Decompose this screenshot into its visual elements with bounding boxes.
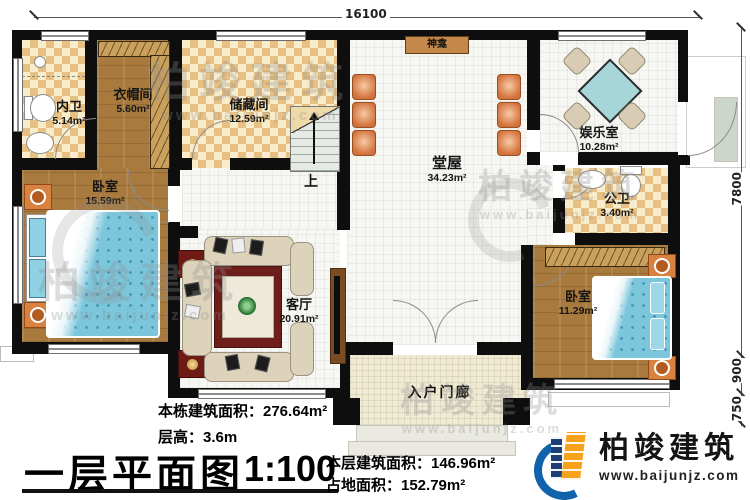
window-top-inner-bath bbox=[41, 31, 89, 41]
room-name: 公卫 bbox=[586, 192, 648, 207]
floor-corridor bbox=[182, 168, 347, 230]
stairs-up-label: 上 bbox=[304, 171, 318, 191]
hall-chair bbox=[352, 130, 376, 156]
brand-logo-text: 柏竣建筑 www.baijunjz.com bbox=[599, 434, 740, 483]
dimension-right-upper-value: 7800 bbox=[727, 172, 747, 205]
wall-living-top-stub bbox=[168, 226, 198, 238]
wall-bedroom-right-left bbox=[521, 245, 533, 390]
wall-entertainment-bottom-b bbox=[578, 152, 678, 165]
pillow bbox=[650, 282, 665, 314]
shower-partition bbox=[22, 76, 85, 77]
room-name: 储藏间 bbox=[210, 98, 288, 113]
sofa-pillow bbox=[184, 282, 201, 297]
sofa-pillow bbox=[231, 237, 245, 253]
room-area: 10.28m² bbox=[560, 141, 638, 153]
hall-chair bbox=[497, 130, 521, 156]
wall-public-bath-left-a bbox=[553, 165, 565, 171]
dimension-right-lower-value: 750 bbox=[727, 396, 747, 421]
brand-website: www.baijunjz.com bbox=[599, 468, 740, 483]
porch-pillar-right bbox=[503, 398, 530, 425]
window-bottom-bedroom-right bbox=[554, 379, 670, 389]
room-label-storage: 储藏间 12.59m² bbox=[210, 98, 288, 125]
wall-right-mid bbox=[668, 155, 690, 165]
porch-pillar-left bbox=[333, 398, 360, 425]
dimension-tick bbox=[29, 10, 39, 20]
pillow bbox=[650, 318, 665, 350]
room-area: 20.91m² bbox=[266, 313, 332, 325]
sofa-chaise-top bbox=[290, 242, 314, 296]
sink bbox=[26, 132, 54, 154]
stat-land-area: 占地面积：152.79m² bbox=[326, 474, 465, 495]
sofa-pillow bbox=[249, 239, 264, 256]
window-top-entertainment bbox=[558, 31, 646, 41]
stairs-direction-arrow bbox=[309, 112, 319, 120]
window-left-inner-bath bbox=[13, 58, 23, 132]
room-label-bedroom-left: 卧室 15.59m² bbox=[60, 180, 150, 207]
room-area: 11.29m² bbox=[538, 305, 618, 317]
room-name: 客厅 bbox=[266, 298, 332, 313]
wall-cloakroom-right bbox=[168, 40, 182, 170]
room-label-entertainment: 娱乐室 10.28m² bbox=[560, 126, 638, 153]
room-name: 卧室 bbox=[60, 180, 150, 195]
brand-logo: 柏竣建筑 www.baijunjz.com bbox=[534, 428, 740, 488]
wall-hall-bottom-b bbox=[477, 342, 530, 355]
sofa-pillow bbox=[184, 304, 201, 319]
wall-public-bath-left-b bbox=[553, 198, 565, 233]
room-name: 娱乐室 bbox=[560, 126, 638, 141]
sofa-pillow bbox=[225, 354, 240, 371]
brand-logo-icon bbox=[534, 428, 590, 488]
wardrobe bbox=[545, 247, 665, 267]
stat-building-total-area: 本栋建筑面积：276.64m² bbox=[158, 400, 327, 421]
room-label-main-hall: 堂屋 34.23m² bbox=[402, 155, 492, 184]
exterior-pad-right bbox=[548, 392, 670, 407]
hall-chair bbox=[352, 74, 376, 100]
room-name: 内卫 bbox=[40, 100, 98, 115]
room-name: 衣帽间 bbox=[98, 88, 168, 103]
wall-hall-bottom-a bbox=[345, 342, 393, 355]
room-label-entry-porch: 入户门廊 bbox=[382, 382, 497, 402]
bed-left bbox=[46, 210, 160, 338]
room-area: 34.23m² bbox=[402, 172, 492, 184]
wall-public-bath-bottom bbox=[575, 233, 678, 245]
room-area: 3.40m² bbox=[586, 207, 648, 219]
floor-corridor-right bbox=[527, 165, 553, 245]
window-bottom-bedroom-left bbox=[48, 344, 140, 354]
wall-hall-right bbox=[527, 30, 540, 130]
sofa-bottom bbox=[204, 352, 294, 382]
tv bbox=[334, 276, 340, 354]
dimension-right-middle-value: 900 bbox=[727, 358, 747, 383]
stairs-direction-line bbox=[313, 120, 315, 164]
floor-plan-canvas: 柏竣建筑 www.baijunjz.com 柏竣建筑 www.baijunjz.… bbox=[0, 0, 750, 500]
brand-name: 柏竣建筑 bbox=[599, 434, 740, 464]
window-left-bedroom bbox=[13, 206, 23, 304]
hall-chair bbox=[497, 74, 521, 100]
window-bottom-living bbox=[198, 389, 326, 399]
room-name: 卧室 bbox=[538, 290, 618, 305]
room-label-living: 客厅 20.91m² bbox=[266, 298, 332, 325]
room-area: 5.14m² bbox=[40, 115, 98, 127]
hall-chair bbox=[497, 102, 521, 128]
plant bbox=[238, 297, 256, 315]
plan-scale: 1:100 bbox=[244, 448, 336, 490]
room-label-public-bath: 公卫 3.40m² bbox=[586, 192, 648, 219]
dimension-tick bbox=[693, 10, 703, 20]
nightstand bbox=[24, 184, 52, 210]
room-name: 堂屋 bbox=[402, 155, 492, 172]
room-area: 15.59m² bbox=[60, 195, 150, 207]
window-top-storage bbox=[216, 31, 306, 41]
stat-floor-area: 本层建筑面积：146.96m² bbox=[326, 452, 495, 473]
shower-head bbox=[34, 56, 46, 68]
bed-blanket bbox=[48, 212, 158, 336]
title-underline bbox=[22, 489, 338, 493]
room-label-bedroom-right: 卧室 11.29m² bbox=[538, 290, 618, 317]
room-area: 12.59m² bbox=[210, 113, 288, 125]
sofa-chaise-bottom bbox=[290, 322, 314, 376]
shrine-shelf: 神龛 bbox=[405, 36, 469, 54]
room-label-cloakroom: 衣帽间 5.60m² bbox=[98, 88, 168, 115]
wall-right-upper bbox=[678, 30, 688, 102]
room-area: 5.60m² bbox=[98, 103, 168, 115]
hall-chair bbox=[352, 102, 376, 128]
sink bbox=[578, 170, 606, 189]
dimension-top-value: 16100 bbox=[342, 7, 390, 21]
room-label-inner-bath: 内卫 5.14m² bbox=[40, 100, 98, 127]
nightstand bbox=[648, 254, 676, 278]
logo-building-dark bbox=[551, 437, 562, 479]
wall-entertainment-bottom-a bbox=[527, 152, 540, 165]
wall-storage-bottom-a bbox=[182, 158, 192, 170]
wall-living-left-a bbox=[168, 168, 180, 186]
